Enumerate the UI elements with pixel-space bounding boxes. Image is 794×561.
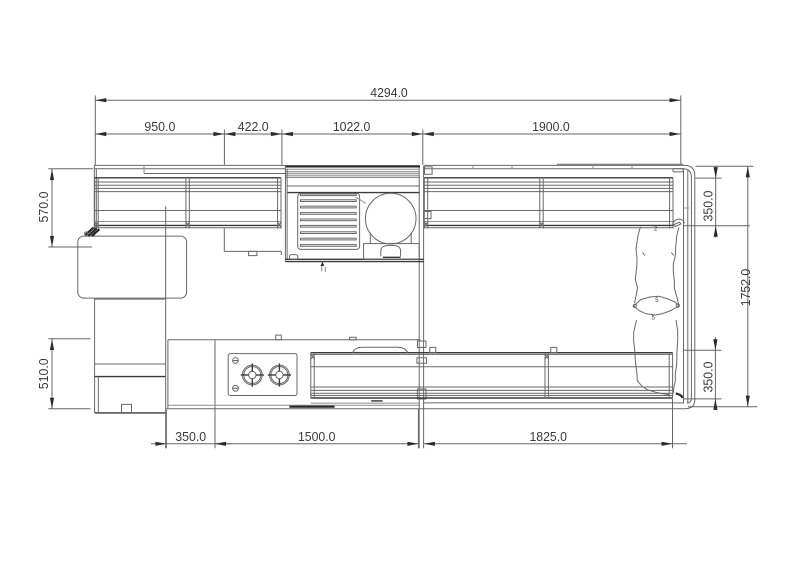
svg-text:510.0: 510.0 — [36, 358, 51, 389]
svg-text:350.0: 350.0 — [175, 429, 206, 444]
svg-text:1022.0: 1022.0 — [333, 119, 371, 134]
svg-text:350.0: 350.0 — [700, 362, 715, 393]
svg-text:570.0: 570.0 — [36, 192, 51, 223]
svg-text:1752.0: 1752.0 — [738, 269, 753, 307]
svg-text:1500.0: 1500.0 — [298, 429, 336, 444]
svg-text:5: 5 — [655, 298, 659, 304]
svg-text:1825.0: 1825.0 — [529, 429, 567, 444]
svg-text:950.0: 950.0 — [144, 119, 175, 134]
svg-text:350.0: 350.0 — [700, 191, 715, 222]
svg-text:422.0: 422.0 — [238, 119, 269, 134]
svg-text:5: 5 — [652, 316, 656, 322]
svg-text:4294.0: 4294.0 — [370, 85, 408, 100]
svg-text:1900.0: 1900.0 — [532, 119, 570, 134]
